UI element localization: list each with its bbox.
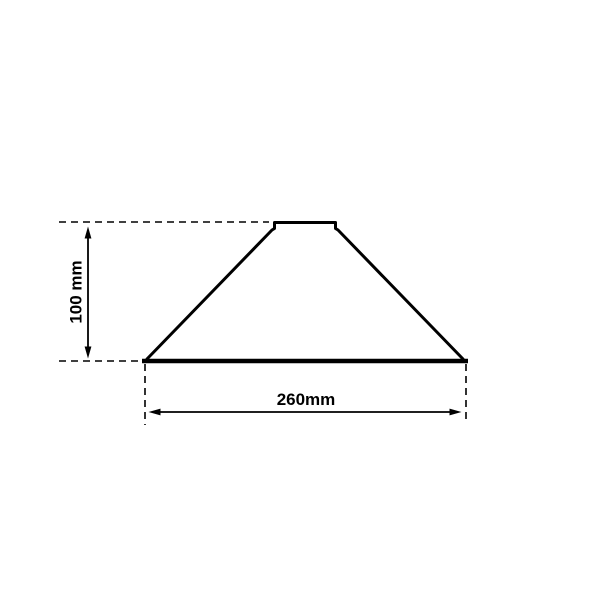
arrow-left-icon xyxy=(149,409,161,416)
drawing-canvas: 100 mm 260mm xyxy=(0,0,600,600)
lampshade-dimension-diagram: 100 mm 260mm xyxy=(0,0,600,600)
lampshade-outline xyxy=(147,223,463,360)
arrow-right-icon xyxy=(450,409,462,416)
arrow-down-icon xyxy=(85,347,92,359)
width-dimension: 260mm xyxy=(149,390,462,415)
arrow-up-icon xyxy=(85,227,92,239)
extension-lines xyxy=(59,222,466,425)
height-dimension: 100 mm xyxy=(66,227,91,359)
width-dimension-label: 260mm xyxy=(277,390,336,409)
height-dimension-label: 100 mm xyxy=(66,260,85,323)
